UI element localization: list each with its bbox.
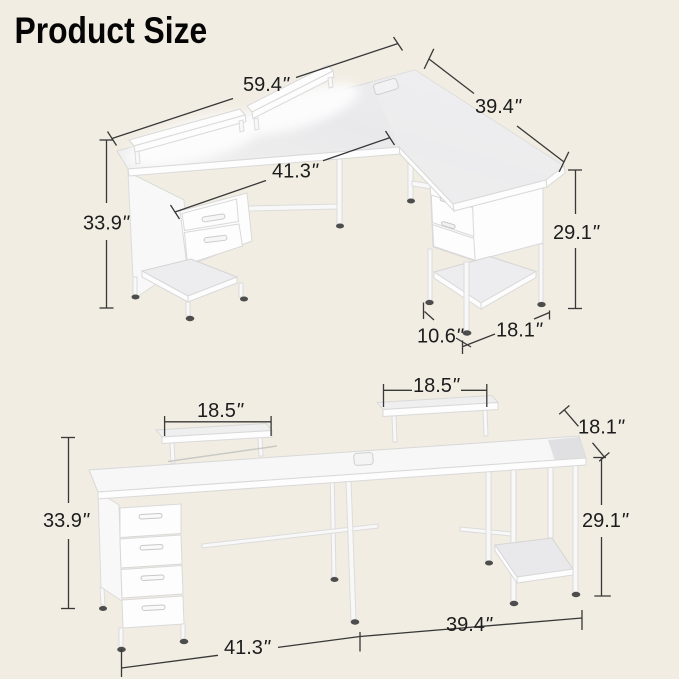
svg-text:10.6": 10.6" — [417, 326, 464, 348]
svg-text:18.5": 18.5" — [197, 400, 244, 422]
svg-text:29.1": 29.1" — [553, 222, 600, 244]
svg-text:Product Size: Product Size — [15, 11, 208, 52]
svg-text:59.4": 59.4" — [243, 74, 290, 96]
svg-text:18.1": 18.1" — [496, 320, 543, 342]
svg-text:18.1": 18.1" — [578, 417, 625, 439]
svg-text:29.1": 29.1" — [582, 510, 629, 532]
svg-text:41.3": 41.3" — [272, 161, 319, 183]
svg-text:33.9": 33.9" — [83, 213, 130, 235]
svg-text:33.9": 33.9" — [43, 510, 90, 532]
svg-text:39.4": 39.4" — [446, 614, 493, 636]
svg-text:18.5": 18.5" — [413, 375, 460, 397]
svg-text:41.3": 41.3" — [224, 637, 271, 659]
svg-text:39.4": 39.4" — [475, 96, 522, 118]
